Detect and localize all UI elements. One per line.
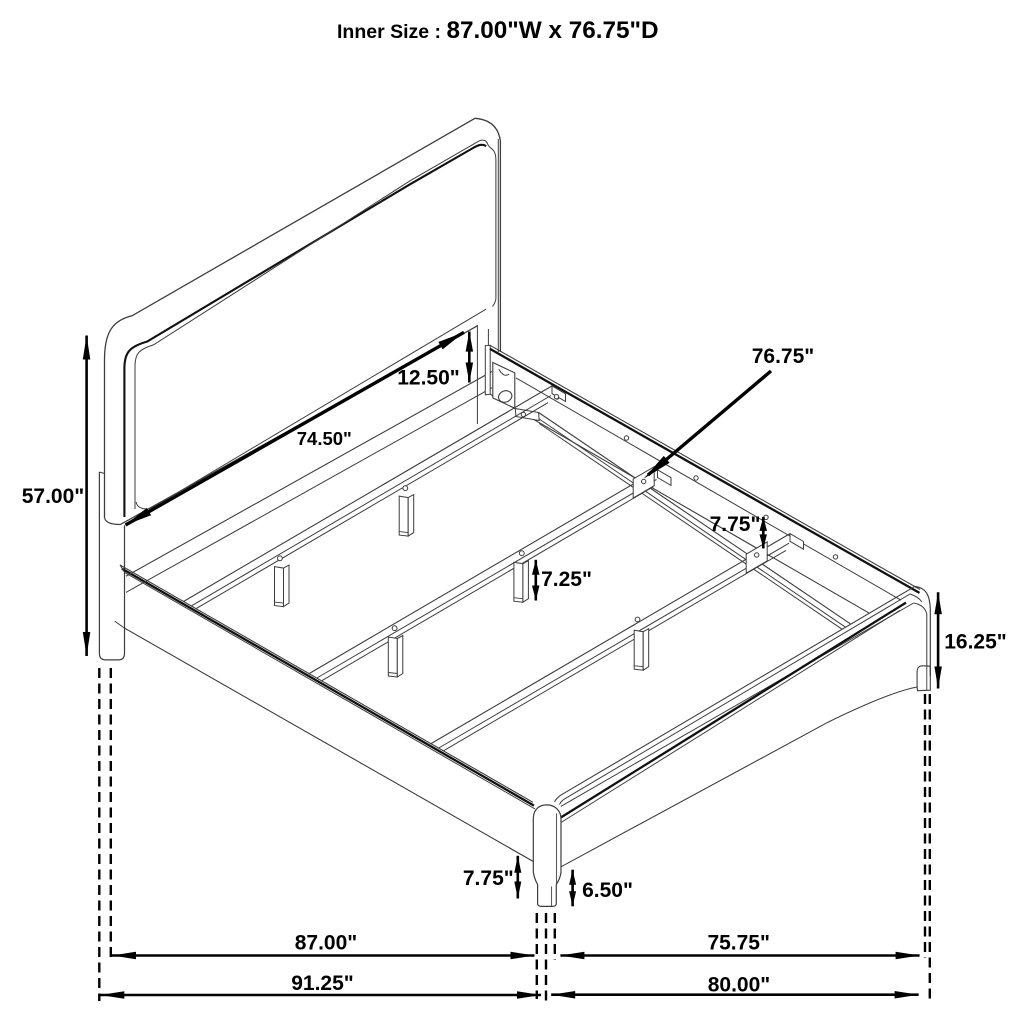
- svg-text:74.50": 74.50": [297, 428, 352, 449]
- svg-text:7.25": 7.25": [541, 568, 592, 591]
- svg-text:12.50": 12.50": [397, 367, 460, 390]
- svg-text:7.75": 7.75": [463, 867, 514, 890]
- svg-text:7.75": 7.75": [710, 513, 761, 536]
- svg-text:57.00": 57.00": [22, 485, 85, 508]
- svg-text:16.25": 16.25": [944, 631, 1007, 654]
- svg-text:6.50": 6.50": [582, 879, 633, 902]
- svg-text:80.00": 80.00": [708, 974, 771, 997]
- svg-text:Inner Size : 87.00"W x 76.75"D: Inner Size : 87.00"W x 76.75"D: [337, 17, 659, 44]
- svg-text:91.25": 91.25": [291, 972, 354, 995]
- svg-text:76.75": 76.75": [752, 345, 815, 368]
- svg-text:75.75": 75.75": [707, 932, 770, 955]
- svg-text:87.00": 87.00": [295, 932, 358, 955]
